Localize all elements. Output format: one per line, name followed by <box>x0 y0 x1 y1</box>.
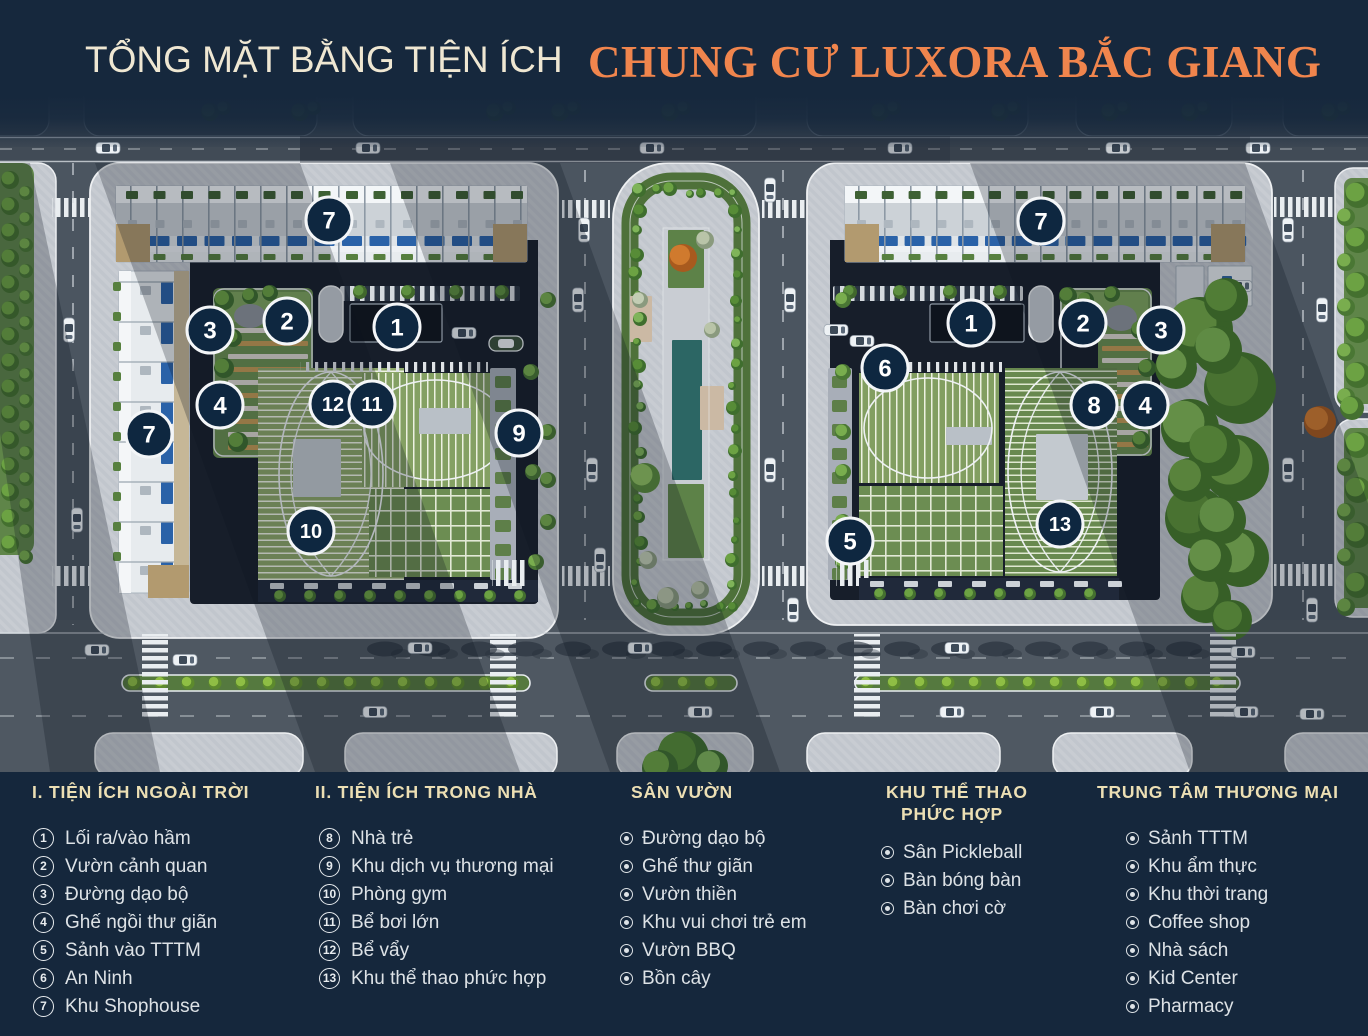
svg-text:6: 6 <box>878 356 891 383</box>
svg-text:7: 7 <box>322 208 335 235</box>
svg-text:8: 8 <box>1087 393 1100 420</box>
svg-text:13: 13 <box>1049 514 1071 536</box>
svg-text:3: 3 <box>203 318 216 345</box>
svg-text:5: 5 <box>843 529 856 556</box>
svg-text:12: 12 <box>322 394 344 416</box>
svg-text:1: 1 <box>964 311 977 338</box>
svg-text:7: 7 <box>1034 209 1047 236</box>
svg-text:2: 2 <box>1076 311 1089 338</box>
svg-text:2: 2 <box>280 309 293 336</box>
svg-text:4: 4 <box>213 393 227 420</box>
svg-text:9: 9 <box>512 421 525 448</box>
svg-text:7: 7 <box>142 422 155 449</box>
svg-text:1: 1 <box>390 315 403 342</box>
svg-text:10: 10 <box>300 521 322 543</box>
svg-text:11: 11 <box>361 394 382 416</box>
svg-text:4: 4 <box>1138 393 1152 420</box>
svg-text:3: 3 <box>1154 318 1167 345</box>
